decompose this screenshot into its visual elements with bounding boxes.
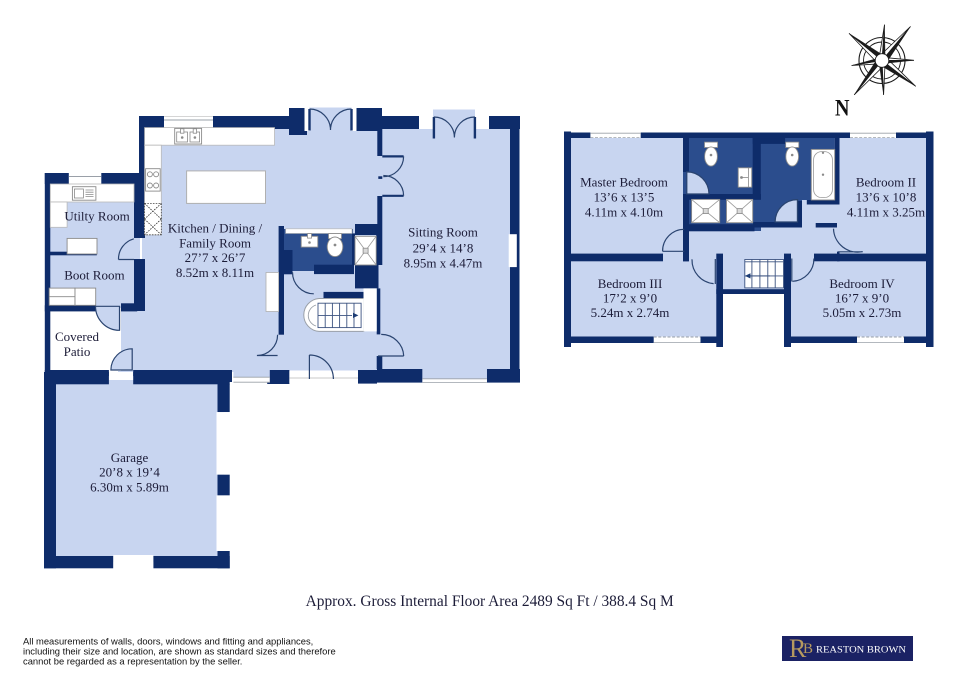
svg-text:Patio: Patio xyxy=(64,344,91,359)
svg-text:6.30m x 5.89m: 6.30m x 5.89m xyxy=(90,479,169,494)
svg-text:13’6 x 10’8: 13’6 x 10’8 xyxy=(856,190,917,205)
svg-text:20’8 x 19’4: 20’8 x 19’4 xyxy=(99,465,160,480)
svg-text:4.11m x 4.10m: 4.11m x 4.10m xyxy=(585,204,663,219)
svg-text:Bedroom III: Bedroom III xyxy=(598,276,663,291)
svg-text:REASTON BROWN: REASTON BROWN xyxy=(816,646,906,656)
svg-text:Boot Room: Boot Room xyxy=(64,267,124,282)
svg-text:Covered: Covered xyxy=(55,329,100,344)
svg-text:Bedroom IV: Bedroom IV xyxy=(829,276,895,291)
svg-text:Kitchen / Dining /: Kitchen / Dining / xyxy=(168,221,263,236)
svg-text:5.05m x 2.73m: 5.05m x 2.73m xyxy=(823,305,902,320)
svg-text:16’7 x 9’0: 16’7 x 9’0 xyxy=(835,291,889,306)
svg-text:13’6 x 13’5: 13’6 x 13’5 xyxy=(594,190,655,205)
svg-text:29’4 x 14’8: 29’4 x 14’8 xyxy=(413,240,474,255)
svg-text:Family Room: Family Room xyxy=(179,236,251,251)
svg-text:Bedroom II: Bedroom II xyxy=(856,174,916,189)
svg-text:B: B xyxy=(803,641,813,657)
svg-text:Approx. Gross Internal Floor A: Approx. Gross Internal Floor Area 2489 S… xyxy=(306,593,674,610)
svg-text:Master Bedroom: Master Bedroom xyxy=(580,174,668,189)
svg-text:17’2 x 9’0: 17’2 x 9’0 xyxy=(603,291,657,306)
svg-text:27’7 x 26’7: 27’7 x 26’7 xyxy=(185,250,246,265)
svg-text:Garage: Garage xyxy=(111,450,149,465)
svg-text:Utilty Room: Utilty Room xyxy=(64,208,129,223)
svg-text:8.52m x 8.11m: 8.52m x 8.11m xyxy=(176,265,254,280)
svg-text:4.11m x 3.25m: 4.11m x 3.25m xyxy=(847,204,925,219)
svg-text:Sitting Room: Sitting Room xyxy=(408,225,478,240)
svg-text:5.24m x 2.74m: 5.24m x 2.74m xyxy=(591,305,670,320)
svg-text:cannot be regarded as a repres: cannot be regarded as a representation b… xyxy=(23,656,242,667)
svg-text:8.95m x 4.47m: 8.95m x 4.47m xyxy=(404,256,483,271)
svg-text:N: N xyxy=(835,96,850,121)
